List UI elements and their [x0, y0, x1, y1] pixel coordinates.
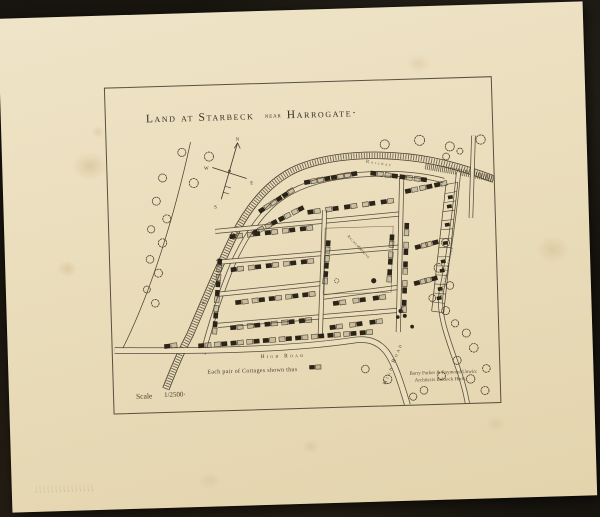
- map-title-part1: Land at Starbeck: [146, 110, 255, 125]
- scale-value: 1/2500·: [164, 390, 186, 399]
- paper-sheet: Land at Starbeck near Harrogate· N W E S…: [0, 1, 597, 512]
- attribution-line1: Barry Parker & Raymond Unwin:: [409, 370, 477, 377]
- central-green: [321, 226, 395, 294]
- compass-n-label: N: [236, 138, 240, 143]
- map-frame: Land at Starbeck near Harrogate· N W E S…: [104, 76, 502, 414]
- legend-text: Each pair of Cottages shown thus: [207, 366, 298, 376]
- map-title-near: near: [265, 111, 282, 119]
- railway-label-top: Railway: [366, 159, 393, 168]
- faint-pencil-inscription: [36, 484, 96, 493]
- attribution-line2: Architects Baldock Herts.: [415, 377, 467, 384]
- scale-label: Scale: [136, 391, 153, 400]
- compass-rose: [212, 142, 248, 199]
- high-road-label: High Road: [260, 353, 305, 360]
- compass-e-label: E: [250, 181, 253, 186]
- compass-s-label: S: [214, 205, 217, 210]
- cottage-rows: [159, 168, 452, 349]
- compass-w-label: W: [204, 167, 209, 172]
- map-title-part2: Harrogate·: [287, 107, 358, 121]
- tree-lined-boundary: [115, 142, 197, 352]
- map-drawing: Land at Starbeck near Harrogate· N W E S…: [105, 77, 500, 413]
- legend-cottage-pair-symbol: [309, 365, 321, 370]
